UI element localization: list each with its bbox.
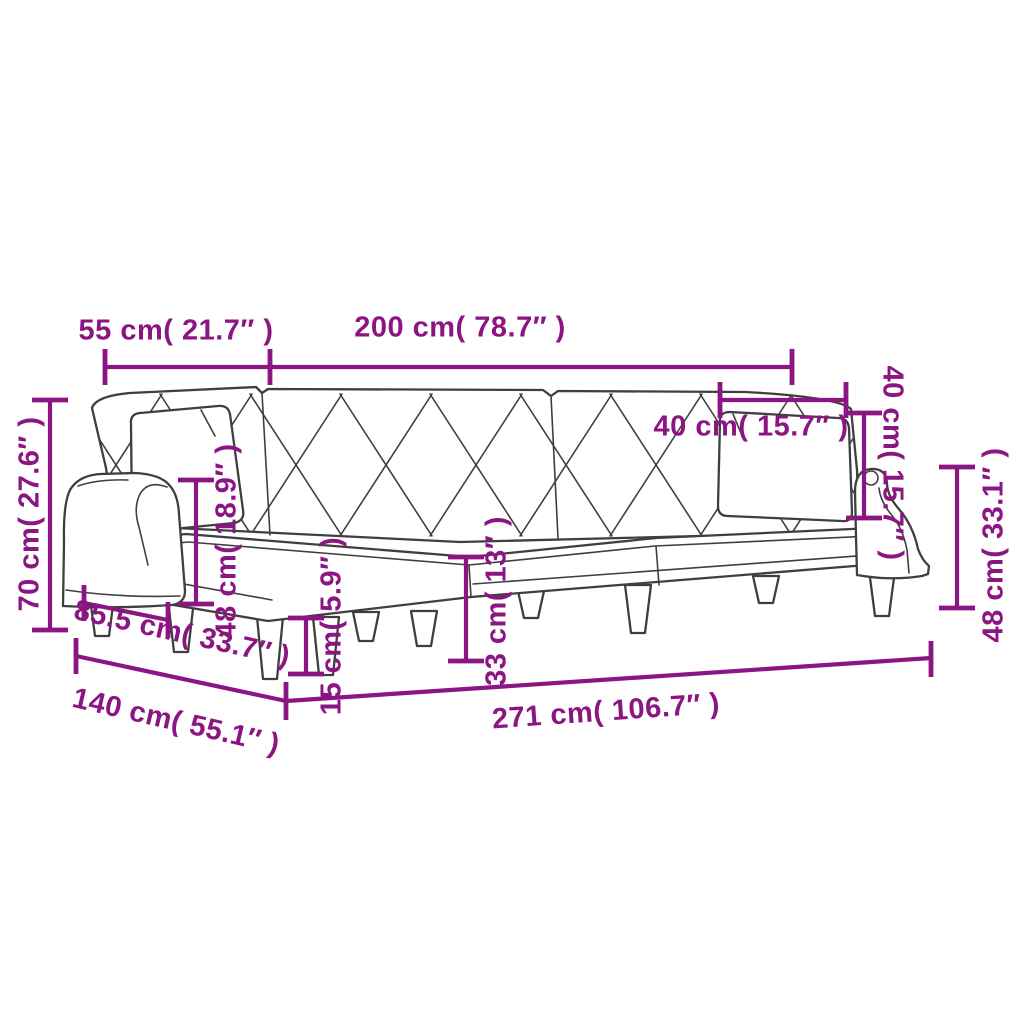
dim-top-width — [105, 349, 792, 385]
leg — [518, 591, 544, 618]
dim-label-top-width-left: 55 cm( 21.7″ ) — [79, 317, 274, 346]
dimension-diagram: 55 cm( 21.7″ ) 200 cm( 78.7″ ) 70 cm( 27… — [0, 0, 1024, 1024]
diagram-svg — [0, 0, 1024, 1024]
leg — [353, 612, 379, 641]
dim-label-overall-height: 70 cm( 27.6″ ) — [16, 417, 45, 612]
dim-label-pillow-width: 40 cm( 15.7″ ) — [654, 413, 849, 442]
leg — [625, 585, 651, 633]
dim-label-pillow-height: 40 cm( 15.7″ ) — [878, 366, 907, 561]
dim-label-backrest-height: 48 cm( 33.1″ ) — [980, 448, 1009, 643]
armrest-left — [63, 473, 185, 607]
dim-total-width — [286, 641, 931, 701]
dim-backrest-height — [939, 467, 975, 608]
dim-label-leg-height: 15 cm( 5.9″ ) — [318, 537, 347, 715]
leg — [411, 611, 437, 646]
dim-label-seat-height-front: 33 cm( 13″ ) — [483, 516, 512, 686]
dim-label-seat-height-left: 48 cm( 18.9″ ) — [213, 444, 242, 639]
leg — [753, 576, 779, 603]
dim-label-top-width-main: 200 cm( 78.7″ ) — [354, 314, 566, 343]
